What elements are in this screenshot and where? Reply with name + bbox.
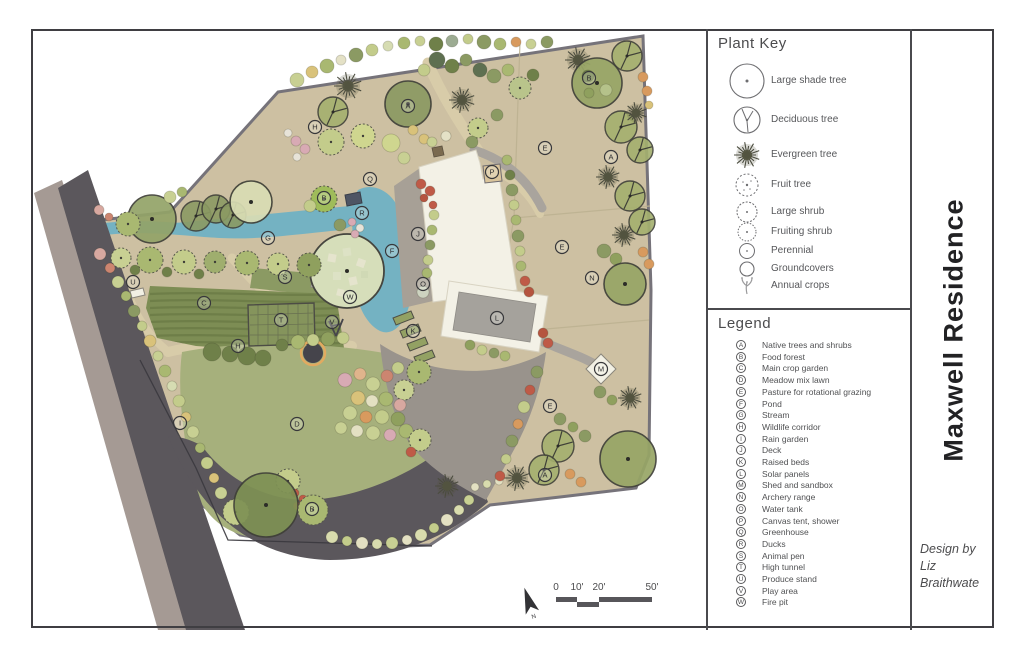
divider-panels-title (910, 29, 912, 630)
divider-map-panels (706, 29, 708, 630)
divider-key-legend (707, 308, 911, 310)
sheet-frame (31, 29, 994, 628)
plan-sheet: AAABBBCDEEEFGHHIJKLMNOPQRSTUVW N 0 10' 2… (0, 0, 1024, 662)
